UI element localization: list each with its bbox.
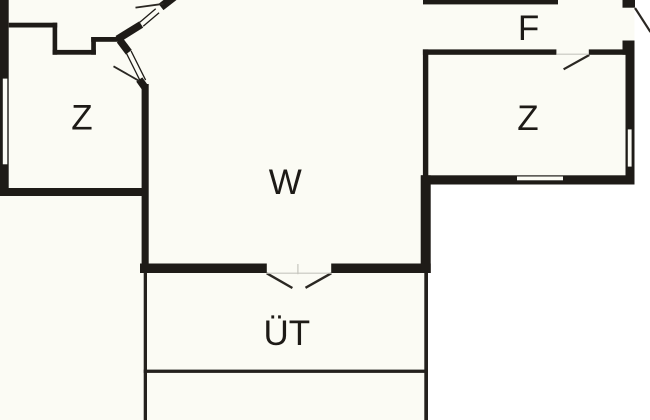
svg-text:F: F	[518, 9, 539, 48]
svg-text:Z: Z	[71, 99, 92, 138]
svg-text:W: W	[269, 163, 302, 202]
svg-text:ÜT: ÜT	[263, 314, 310, 353]
svg-text:Z: Z	[517, 99, 538, 138]
